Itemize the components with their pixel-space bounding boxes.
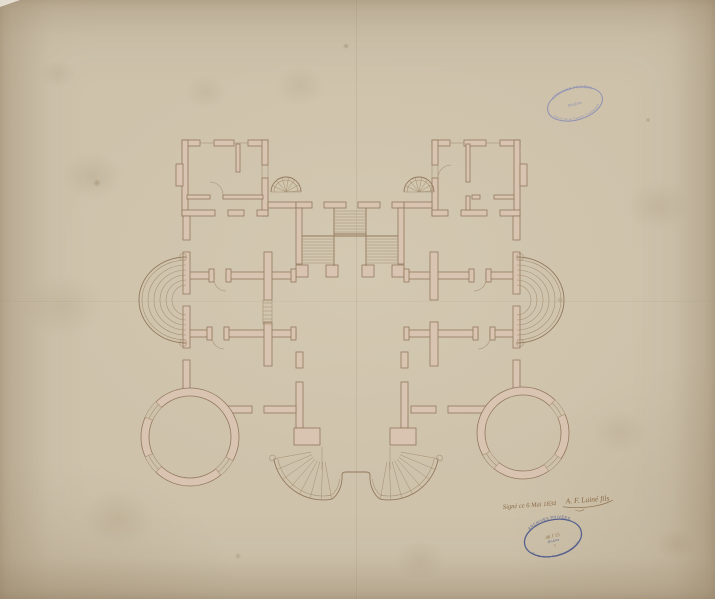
east-curved-garden-steps <box>517 254 565 347</box>
stamp-bottom-bottom-text: Fonds de la Famille CHAPONAY <box>530 540 582 564</box>
south-front-walls <box>228 406 486 413</box>
west-curved-garden-steps <box>139 254 187 347</box>
northeast-pavilion <box>432 140 527 216</box>
handwritten-annotation: Signé ce 6 Mai 1834 A. F. Lainé fils <box>502 493 613 516</box>
annotation-signature-text: A. F. Lainé fils <box>564 494 609 506</box>
southwest-round-tower <box>141 388 239 486</box>
stamp-top-center-text: Rhône <box>567 100 582 109</box>
east-wing-wall <box>513 216 520 390</box>
left-spiral-stair <box>271 177 301 192</box>
scanned-plan-page: Signé ce 6 Mai 1834 A. F. Lainé fils ARC… <box>0 0 715 599</box>
north-corridor-walls <box>268 202 432 208</box>
signature-scribble <box>575 509 584 511</box>
transverse-wall-upper <box>183 252 515 300</box>
grand-central-staircase <box>296 202 404 277</box>
southeast-round-tower <box>477 387 569 479</box>
stamp-top-arc-text: ARCHIVES PRIVÉES <box>549 81 593 101</box>
archive-stamp-top: ARCHIVES PRIVÉES Rhône Fonds de la Famil… <box>543 79 606 126</box>
floor-plan-drawing: Signé ce 6 Mai 1834 A. F. Lainé fils ARC… <box>0 0 715 599</box>
central-vestibule <box>294 352 416 470</box>
stamp-bottom-number: 1 <box>553 543 556 548</box>
west-wing-wall <box>183 216 190 392</box>
south-horseshoe-stair <box>270 452 443 500</box>
archive-stamp-bottom: ARCHIVES PRIVÉES 46 J 15 Rhône 1 Fonds d… <box>520 510 586 565</box>
transverse-wall-lower <box>183 300 515 366</box>
right-spiral-stair <box>404 177 434 192</box>
northwest-pavilion <box>176 140 268 216</box>
annotation-date-text: Signé ce 6 Mai 1834 <box>503 500 558 511</box>
